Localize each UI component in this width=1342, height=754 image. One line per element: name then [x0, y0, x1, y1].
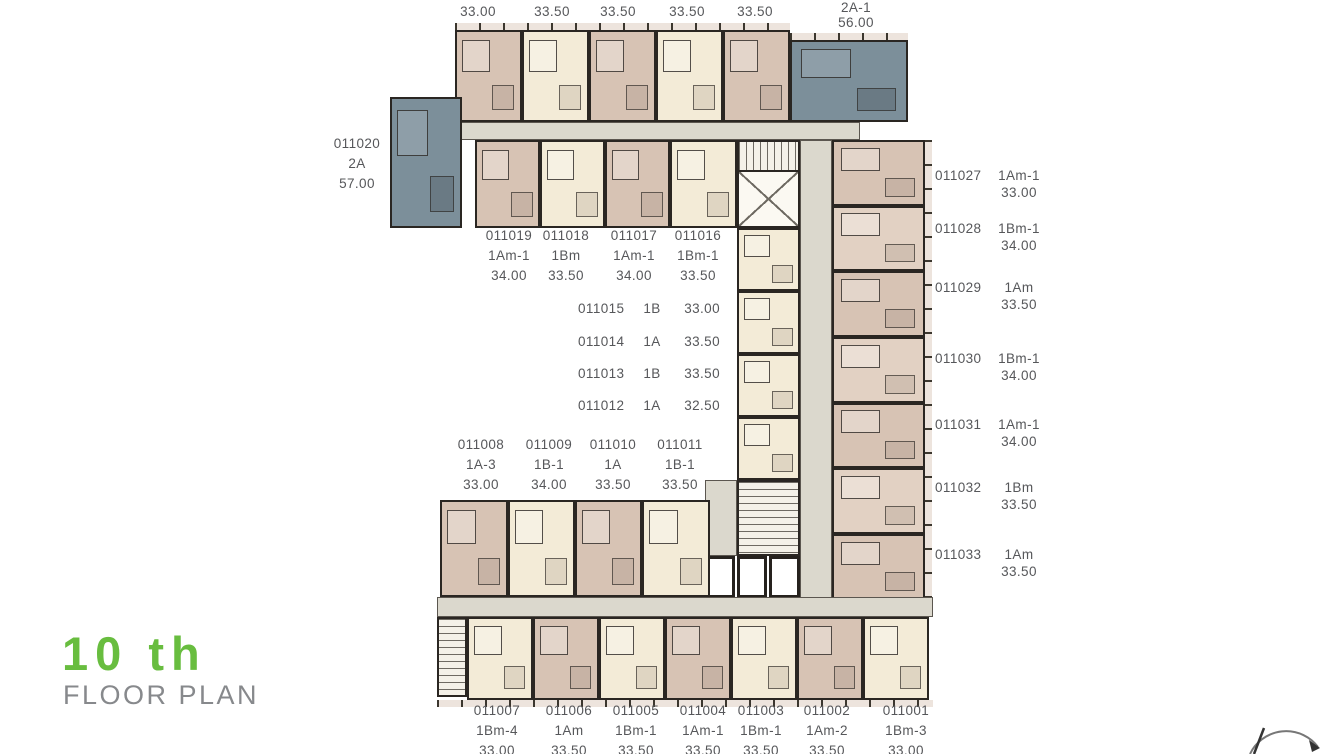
unit-block-011007 — [467, 617, 533, 700]
label-unit-2A-1: 2A-1 56.00 — [820, 0, 892, 30]
size-label-top-3: 33.50 — [588, 2, 648, 22]
unit-size: 32.50 — [672, 398, 720, 413]
unit-block-011017 — [605, 140, 670, 228]
shaft-top — [737, 170, 800, 228]
unit-block-2A-1 — [790, 40, 908, 122]
unit-number: 011011 — [638, 435, 722, 455]
unit-block-011014 — [737, 291, 800, 354]
compass-icon — [1242, 716, 1338, 754]
unit-block-011033 — [832, 534, 925, 600]
unit-size: 33.00 — [861, 741, 951, 754]
unit-block-top-4 — [656, 30, 723, 122]
unit-block-011012 — [737, 417, 800, 480]
unit-number: 011013 — [578, 366, 632, 381]
unit-block-011006 — [533, 617, 599, 700]
unit-number: 011031 — [935, 417, 991, 434]
unit-size: 34.00 — [991, 434, 1047, 451]
unit-block-011032 — [832, 468, 925, 534]
unit-type: 1A — [632, 398, 672, 413]
label-unit-011032: 011032 1Bm 33.50 — [935, 480, 1047, 514]
unit-size: 33.50 — [672, 334, 720, 349]
unit-type: 1B-1 — [638, 455, 722, 475]
unit-block-011031 — [832, 403, 925, 468]
unit-number: 011015 — [578, 301, 632, 316]
unit-size: 33.00 — [672, 301, 720, 316]
corridor-bottom — [437, 597, 933, 617]
unit-block-top-5 — [723, 30, 790, 122]
unit-size: 33.50 — [656, 266, 740, 286]
unit-type: 1Bm-1 — [991, 221, 1047, 238]
unit-block-011003 — [731, 617, 797, 700]
unit-type: 1A — [632, 334, 672, 349]
label-unit-011013: 011013 1B 33.50 — [578, 366, 720, 381]
stairs-bottom — [737, 480, 800, 556]
unit-block-011013 — [737, 354, 800, 417]
unit-size: 56.00 — [820, 15, 892, 30]
label-unit-011030: 011030 1Bm-1 34.00 — [935, 351, 1047, 385]
label-unit-011029: 011029 1Am 33.50 — [935, 280, 1047, 314]
unit-type: 1Bm — [991, 480, 1047, 497]
unit-block-011004 — [665, 617, 731, 700]
label-unit-011015: 011015 1B 33.00 — [578, 301, 720, 316]
unit-block-011001 — [863, 617, 929, 700]
unit-number: 011016 — [656, 226, 740, 246]
label-unit-011001: 011001 1Bm-3 33.00 — [861, 701, 951, 754]
unit-number: 011029 — [935, 280, 991, 297]
unit-type: 1Bm-3 — [861, 721, 951, 741]
page-title-floor-plan: FLOOR PLAN — [63, 680, 259, 711]
unit-size: 33.50 — [991, 497, 1047, 514]
unit-number: 011014 — [578, 334, 632, 349]
unit-block-011027 — [832, 140, 925, 206]
unit-type: 1Am — [991, 547, 1047, 564]
unit-number: 011033 — [935, 547, 991, 564]
unit-size: 34.00 — [991, 368, 1047, 385]
unit-type: 1Am-2 — [782, 721, 872, 741]
unit-type: 1Bm-1 — [991, 351, 1047, 368]
unit-block-011009 — [508, 500, 575, 597]
label-unit-011016: 011016 1Bm-1 33.50 — [656, 226, 740, 286]
unit-block-011019 — [475, 140, 540, 228]
unit-size: 57.00 — [315, 174, 399, 194]
unit-size: 33.50 — [672, 366, 720, 381]
unit-number: 011020 — [315, 134, 399, 154]
unit-size: 33.50 — [991, 297, 1047, 314]
balcony-notches-right — [925, 140, 932, 600]
unit-block-011005 — [599, 617, 665, 700]
corridor-right-wing — [800, 140, 832, 600]
unit-block-011028 — [832, 206, 925, 271]
unit-block-011011 — [642, 500, 710, 597]
size-label-top-5: 33.50 — [725, 2, 785, 22]
label-unit-011011: 011011 1B-1 33.50 — [638, 435, 722, 495]
unit-number: 011027 — [935, 168, 991, 185]
unit-block-011008 — [440, 500, 508, 597]
label-unit-011020: 011020 2A 57.00 — [315, 134, 399, 194]
stairs-top — [737, 140, 800, 172]
elevator-3 — [769, 556, 800, 598]
unit-block-top-2 — [522, 30, 589, 122]
unit-number: 011032 — [935, 480, 991, 497]
unit-number: 011012 — [578, 398, 632, 413]
unit-number: 011002 — [782, 701, 872, 721]
label-unit-011033: 011033 1Am 33.50 — [935, 547, 1047, 581]
unit-number: 011001 — [861, 701, 951, 721]
unit-size: 33.50 — [991, 564, 1047, 581]
elevator-2 — [737, 556, 767, 598]
size-label-top-2: 33.50 — [522, 2, 582, 22]
unit-block-011030 — [832, 337, 925, 403]
unit-size: 33.50 — [638, 475, 722, 495]
page-title-floor-number: 10 th — [62, 626, 207, 681]
balcony-notches-corner — [790, 33, 908, 40]
label-unit-011027: 011027 1Am-1 33.00 — [935, 168, 1047, 202]
balcony-notches-top — [455, 23, 790, 30]
unit-number: 011030 — [935, 351, 991, 368]
unit-type: 1Am-1 — [991, 417, 1047, 434]
size-label-top-1: 33.00 — [448, 2, 508, 22]
unit-type: 1B — [632, 301, 672, 316]
unit-block-011002 — [797, 617, 863, 700]
label-unit-011031: 011031 1Am-1 34.00 — [935, 417, 1047, 451]
unit-block-2A — [390, 97, 462, 228]
label-unit-011014: 011014 1A 33.50 — [578, 334, 720, 349]
unit-block-011010 — [575, 500, 642, 597]
unit-type: 2A — [315, 154, 399, 174]
unit-block-011029 — [832, 271, 925, 337]
unit-type: 1Am — [991, 280, 1047, 297]
unit-block-top-1 — [455, 30, 522, 122]
unit-block-011015 — [737, 228, 800, 291]
unit-size: 33.50 — [782, 741, 872, 754]
unit-number: 011028 — [935, 221, 991, 238]
label-unit-011028: 011028 1Bm-1 34.00 — [935, 221, 1047, 255]
unit-block-top-3 — [589, 30, 656, 122]
unit-type: 1Am-1 — [991, 168, 1047, 185]
floor-plan-page: 33.00 33.50 33.50 33.50 33.50 2A-1 56.00… — [0, 0, 1342, 754]
unit-block-011016 — [670, 140, 737, 228]
unit-type: 1Bm-1 — [656, 246, 740, 266]
stairs-bottom-left — [437, 617, 467, 697]
unit-type: 1B — [632, 366, 672, 381]
corridor-top — [455, 122, 860, 140]
unit-type: 2A-1 — [820, 0, 892, 15]
unit-size: 34.00 — [991, 238, 1047, 255]
size-label-top-4: 33.50 — [657, 2, 717, 22]
label-unit-011012: 011012 1A 32.50 — [578, 398, 720, 413]
unit-block-011018 — [540, 140, 605, 228]
label-unit-011002: 011002 1Am-2 33.50 — [782, 701, 872, 754]
unit-size: 33.00 — [991, 185, 1047, 202]
